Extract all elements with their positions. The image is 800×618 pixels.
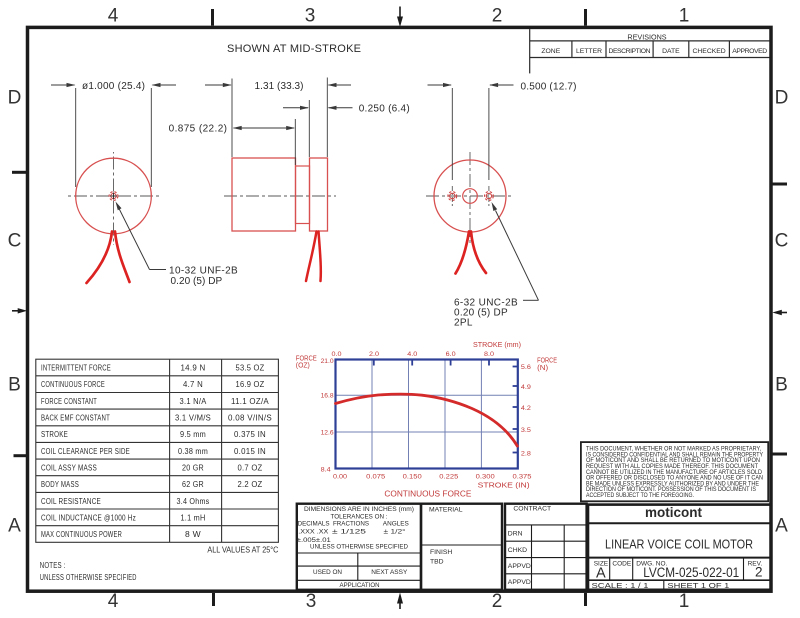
svg-text:6.0: 6.0	[446, 351, 456, 358]
svg-text:0.20 (5) DP: 0.20 (5) DP	[171, 276, 223, 287]
svg-text:A: A	[8, 516, 21, 537]
svg-text:COIL RESISTANCE: COIL RESISTANCE	[41, 496, 101, 506]
svg-text:21.0: 21.0	[321, 358, 334, 365]
svg-text:0.00: 0.00	[333, 474, 347, 481]
svg-text:2: 2	[492, 591, 503, 612]
svg-text:53.5 OZ: 53.5 OZ	[236, 363, 265, 373]
svg-text:MAX CONTINUOUS POWER: MAX CONTINUOUS POWER	[41, 529, 122, 539]
svg-text:2PL: 2PL	[454, 317, 473, 328]
svg-text:TOLERANCES ON :: TOLERANCES ON :	[331, 513, 388, 520]
svg-text:DRN: DRN	[508, 530, 523, 537]
svg-text:LETTER: LETTER	[576, 48, 602, 55]
svg-text:14.9 N: 14.9 N	[181, 363, 206, 373]
svg-text:CODE: CODE	[612, 560, 631, 567]
svg-text:USED ON: USED ON	[313, 569, 342, 576]
svg-text:STROKE (IN): STROKE (IN)	[478, 480, 530, 489]
svg-text:ACCEPTED SUBJECT TO THE FOREGO: ACCEPTED SUBJECT TO THE FOREGOING.	[586, 493, 694, 499]
svg-text:D: D	[8, 88, 22, 109]
svg-text:4: 4	[108, 591, 119, 612]
svg-text:2: 2	[492, 6, 503, 27]
svg-text:4: 4	[108, 6, 119, 27]
svg-text:5.6: 5.6	[521, 364, 531, 371]
svg-text:NOTES :: NOTES :	[40, 560, 66, 570]
svg-text:0.150: 0.150	[403, 474, 422, 481]
svg-text:(N): (N)	[537, 363, 548, 372]
svg-text:APPVD: APPVD	[508, 579, 531, 586]
svg-text:4.7 N: 4.7 N	[183, 379, 203, 389]
svg-text:9.5 mm: 9.5 mm	[180, 429, 206, 439]
svg-text:4.2: 4.2	[521, 405, 531, 412]
svg-text:INTERMITTENT FORCE: INTERMITTENT FORCE	[41, 363, 111, 373]
svg-text:11.1 OZ/A: 11.1 OZ/A	[231, 396, 269, 406]
svg-text:D: D	[775, 88, 789, 109]
svg-text:ANGLES: ANGLES	[383, 521, 409, 528]
svg-text:1.31 (33.3): 1.31 (33.3)	[255, 81, 304, 92]
svg-text:SCALE : 1 / 1: SCALE : 1 / 1	[592, 581, 649, 590]
svg-text:12.6: 12.6	[321, 429, 334, 436]
svg-text:ALL VALUES AT 25°C: ALL VALUES AT 25°C	[207, 545, 278, 555]
svg-text:8.0: 8.0	[484, 351, 494, 358]
svg-text:2.0: 2.0	[369, 351, 379, 358]
svg-text:0.08 V/IN/S: 0.08 V/IN/S	[228, 413, 272, 423]
svg-text:DIMENSIONS ARE IN INCHES (mm): DIMENSIONS ARE IN INCHES (mm)	[304, 506, 414, 513]
svg-text:LINEAR VOICE COIL MOTOR: LINEAR VOICE COIL MOTOR	[605, 537, 753, 552]
svg-text:0.015 IN: 0.015 IN	[234, 446, 266, 456]
svg-text:APPLICATION: APPLICATION	[340, 582, 380, 589]
svg-text:APPVD: APPVD	[508, 563, 531, 570]
svg-text:NEXT ASSY: NEXT ASSY	[371, 569, 407, 576]
svg-text:0.250 (6.4): 0.250 (6.4)	[359, 104, 410, 115]
svg-text:CONTINUOUS FORCE: CONTINUOUS FORCE	[41, 379, 105, 389]
svg-text:3.4 Ohms: 3.4 Ohms	[177, 496, 210, 506]
svg-text:CONTRACT: CONTRACT	[513, 506, 551, 513]
svg-text:2: 2	[755, 565, 763, 580]
svg-text:0.500 (12.7): 0.500 (12.7)	[521, 81, 577, 92]
svg-text:FRACTIONS: FRACTIONS	[333, 521, 369, 528]
svg-text:STROKE (mm): STROKE (mm)	[473, 340, 521, 349]
svg-text:STROKE: STROKE	[41, 429, 68, 439]
svg-text:3.5: 3.5	[521, 427, 531, 434]
svg-text:DATE: DATE	[662, 48, 680, 55]
svg-text:20 GR: 20 GR	[182, 463, 204, 473]
svg-text:FORCE CONSTANT: FORCE CONSTANT	[41, 396, 97, 406]
svg-text:B: B	[775, 375, 788, 396]
svg-text:DECIMALS: DECIMALS	[298, 521, 330, 528]
svg-text:BACK EMF CONSTANT: BACK EMF CONSTANT	[41, 413, 110, 423]
svg-text:8 W: 8 W	[185, 529, 202, 539]
svg-text:LVCM-025-022-01: LVCM-025-022-01	[643, 565, 739, 580]
svg-text:(OZ): (OZ)	[296, 361, 310, 370]
svg-text:DESCRIPTION: DESCRIPTION	[609, 48, 651, 55]
svg-text:B: B	[8, 375, 21, 396]
svg-text:.XXX .XX: .XXX .XX	[298, 528, 328, 535]
svg-text:COIL ASSY MASS: COIL ASSY MASS	[41, 463, 97, 473]
svg-text:± 1/2°: ± 1/2°	[384, 527, 406, 535]
svg-text:SHEET 1 OF 1: SHEET 1 OF 1	[667, 581, 729, 590]
svg-text:UNLESS OTHERWISE SPECIFIED: UNLESS OTHERWISE SPECIFIED	[40, 572, 137, 582]
svg-text:± 1/125: ± 1/125	[332, 528, 366, 535]
svg-text:ZONE: ZONE	[541, 48, 560, 55]
svg-text:4.9: 4.9	[521, 384, 531, 391]
svg-text:CHECKED: CHECKED	[692, 48, 725, 55]
svg-text:3: 3	[306, 591, 317, 612]
svg-text:0.075: 0.075	[366, 474, 385, 481]
svg-text:0.38 mm: 0.38 mm	[178, 446, 208, 456]
svg-text:A: A	[775, 516, 788, 537]
svg-text:10-32 UNF-2B: 10-32 UNF-2B	[169, 265, 238, 276]
svg-text:62 GR: 62 GR	[182, 479, 204, 489]
svg-text:1: 1	[679, 591, 690, 612]
svg-text:TBD: TBD	[430, 559, 444, 566]
svg-text:moticont: moticont	[645, 504, 702, 520]
svg-text:4.0: 4.0	[407, 351, 417, 358]
svg-text:C: C	[8, 231, 22, 252]
svg-text:6-32 UNC-2B: 6-32 UNC-2B	[454, 297, 518, 308]
svg-text:APPROVED: APPROVED	[732, 48, 767, 55]
svg-text:0.875 (22.2): 0.875 (22.2)	[169, 124, 227, 135]
svg-text:COIL CLEARANCE PER SIDE: COIL CLEARANCE PER SIDE	[41, 446, 130, 456]
svg-text:3.1 N/A: 3.1 N/A	[180, 396, 207, 406]
svg-text:COIL INDUCTANCE @1000 Hz: COIL INDUCTANCE @1000 Hz	[41, 512, 136, 522]
svg-text:16.8: 16.8	[321, 393, 334, 400]
svg-text:3.1 V/M/S: 3.1 V/M/S	[175, 413, 211, 423]
svg-text:MATERIAL: MATERIAL	[429, 507, 463, 514]
svg-text:CHKD: CHKD	[508, 547, 527, 554]
svg-text:1: 1	[679, 6, 690, 27]
svg-text:1.1 mH: 1.1 mH	[181, 512, 206, 522]
svg-text:2.2 OZ: 2.2 OZ	[238, 479, 263, 489]
svg-text:0.7 OZ: 0.7 OZ	[238, 463, 263, 473]
svg-text:0.0: 0.0	[332, 351, 342, 358]
svg-text:0.225: 0.225	[439, 474, 458, 481]
svg-text:CONTINUOUS FORCE: CONTINUOUS FORCE	[384, 489, 471, 498]
svg-text:8.4: 8.4	[321, 467, 331, 474]
svg-text:0.375 IN: 0.375 IN	[234, 429, 266, 439]
svg-text:BODY MASS: BODY MASS	[41, 479, 79, 489]
svg-text:FINISH: FINISH	[430, 549, 452, 556]
svg-text:REVISIONS: REVISIONS	[627, 32, 666, 41]
svg-text:2.8: 2.8	[521, 450, 531, 457]
svg-text:3: 3	[305, 6, 316, 27]
svg-text:16.9 OZ: 16.9 OZ	[236, 379, 265, 389]
svg-text:ø1.000 (25.4): ø1.000 (25.4)	[82, 81, 145, 92]
svg-text:A: A	[596, 566, 606, 582]
svg-text:SHOWN AT MID-STROKE: SHOWN AT MID-STROKE	[227, 43, 362, 55]
svg-text:C: C	[775, 231, 789, 252]
svg-text:UNLESS OTHERWISE SPECIFIED: UNLESS OTHERWISE SPECIFIED	[310, 543, 408, 550]
